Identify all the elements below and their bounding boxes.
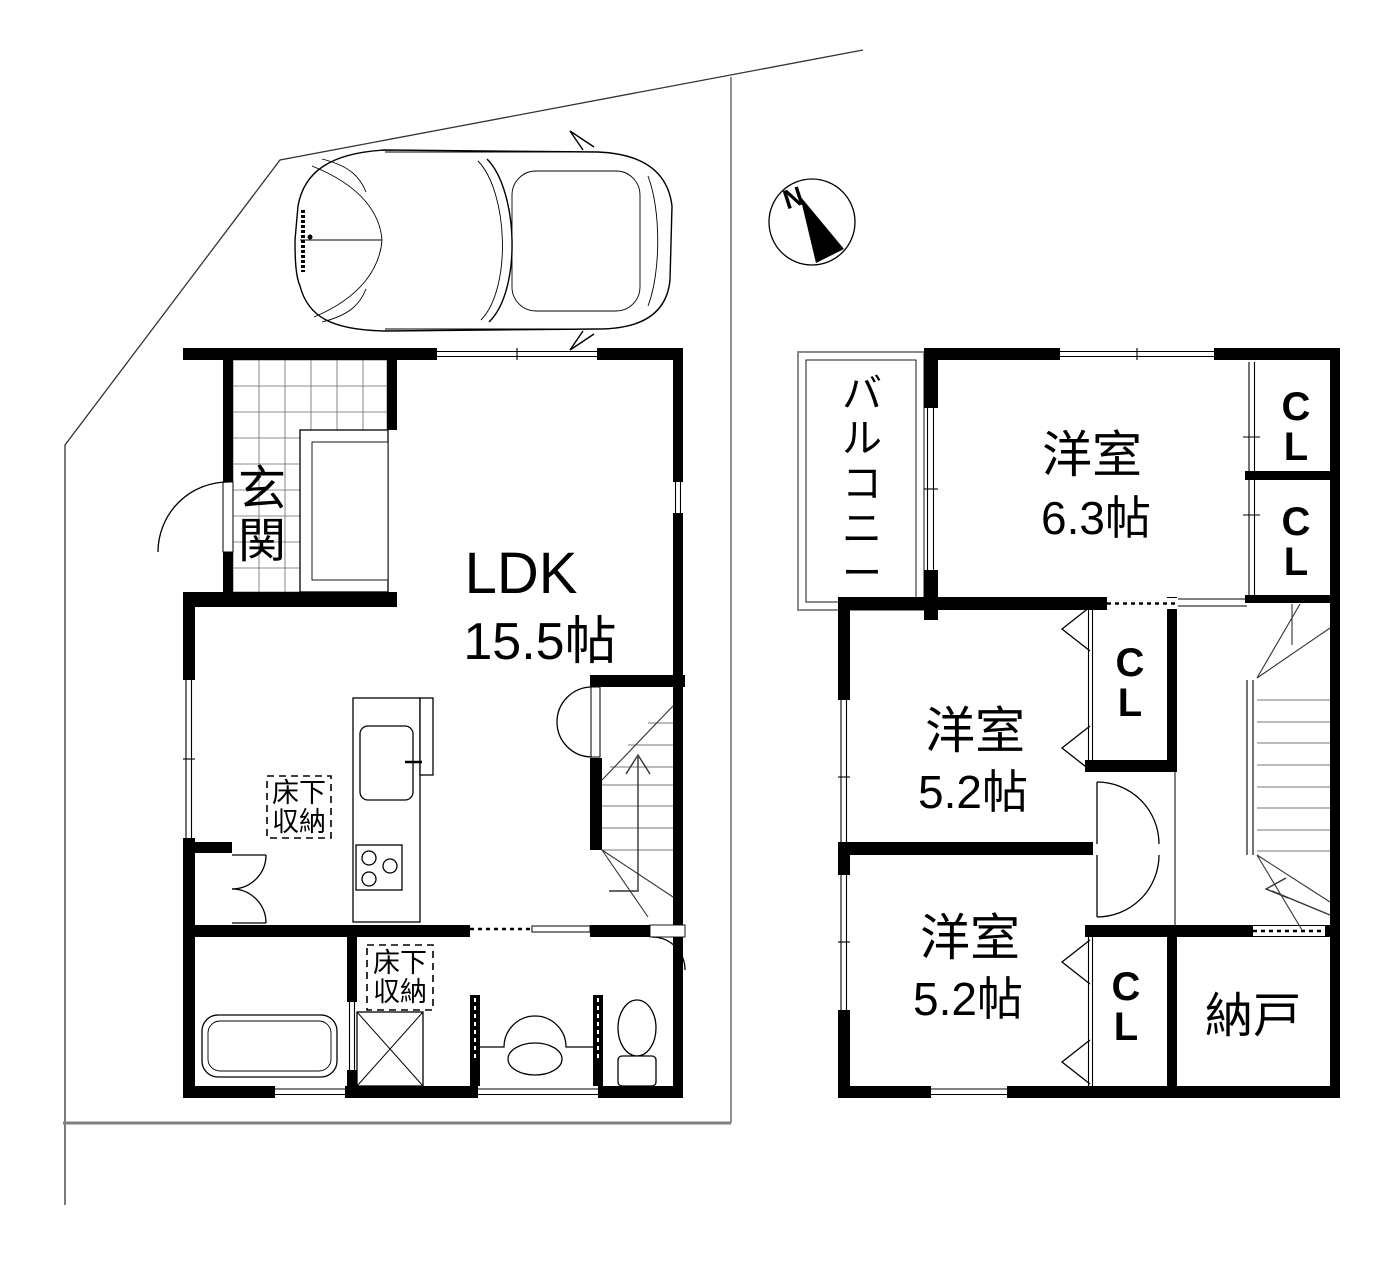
room-a-sliding-door (1107, 598, 1178, 609)
kitchen-counter (353, 698, 433, 922)
ldk-label: LDK (465, 541, 578, 606)
room-c-door (1097, 855, 1159, 917)
room-c-label: 洋室 (920, 910, 1020, 966)
underfloor-storage-2: 床下 収納 (367, 945, 433, 1010)
underfloor-storage-2-label-line2: 収納 (373, 977, 427, 1007)
room-b-label: 洋室 (925, 703, 1025, 759)
window-balcony-wall (924, 408, 938, 570)
washroom-sliding-door (470, 925, 590, 937)
underfloor-storage-2-label-line1: 床下 (373, 948, 427, 978)
window-room-c-west (838, 875, 850, 1010)
window-east (676, 482, 681, 513)
first-floor-plan: 玄関 LDK 15.5帖 床下 収納 床下 収納 (158, 348, 685, 1098)
washing-machine-pan (357, 1012, 423, 1086)
room-b-size-label: 5.2帖 (918, 766, 1028, 818)
underfloor-storage-1-label-line1: 床下 (272, 778, 326, 808)
entrance-label: 玄関 (238, 463, 286, 568)
second-floor-plan: バルコニー 洋室 6.3帖 CL CL 洋室 5.2帖 CL 洋室 5.2帖 C… (798, 348, 1340, 1098)
stairs-second-floor (1247, 604, 1330, 930)
stairs-down-arrow-icon (1266, 878, 1330, 915)
compass: N (769, 179, 855, 265)
kitchen-stove (356, 845, 402, 890)
north-label: N (779, 181, 807, 216)
entrance-door (158, 482, 233, 552)
room-c-size-label: 5.2帖 (913, 973, 1023, 1025)
window-washroom (478, 1089, 598, 1095)
ldk-size-label: 15.5帖 (463, 613, 616, 671)
room-c-closet (1062, 937, 1093, 1086)
storeroom-sliding-door (1253, 926, 1325, 936)
car-illustration (295, 131, 672, 350)
entrance-door-arc (158, 482, 228, 552)
stairs-first-floor (602, 706, 673, 917)
closet-label-3: CL (1116, 641, 1145, 725)
compass-needle-icon (800, 196, 844, 263)
room-b-door (1093, 782, 1159, 855)
closet-label-1: CL (1282, 385, 1311, 469)
window-room-c-bottom (931, 1089, 1007, 1095)
room-a-label: 洋室 (1042, 427, 1142, 483)
bathtub (202, 1015, 337, 1077)
underfloor-storage-1-label-line2: 収納 (272, 807, 326, 837)
window-west (183, 680, 195, 838)
window-bath (275, 1089, 345, 1095)
closet-label-4: CL (1112, 965, 1141, 1049)
storeroom-label: 納戸 (1205, 990, 1301, 1043)
toilet (618, 1000, 656, 1086)
room-b-closet (1062, 604, 1093, 772)
stair-hall-double-door (557, 687, 600, 757)
room-a-size-label: 6.3帖 (1041, 492, 1151, 544)
balcony-label: バルコニー (842, 372, 882, 596)
west-closet-double-door (232, 855, 266, 923)
underfloor-storage-1: 床下 収納 (267, 776, 331, 838)
window-top (437, 348, 597, 360)
floor-plan-page: N (0, 0, 1398, 1263)
bath-door (350, 1002, 355, 1070)
window-room-b-west (838, 700, 850, 855)
stairs-up-arrow-icon (609, 755, 650, 891)
washbasin (480, 1016, 593, 1075)
closet-label-2: CL (1282, 500, 1311, 584)
window-room-a-top (1060, 348, 1214, 360)
